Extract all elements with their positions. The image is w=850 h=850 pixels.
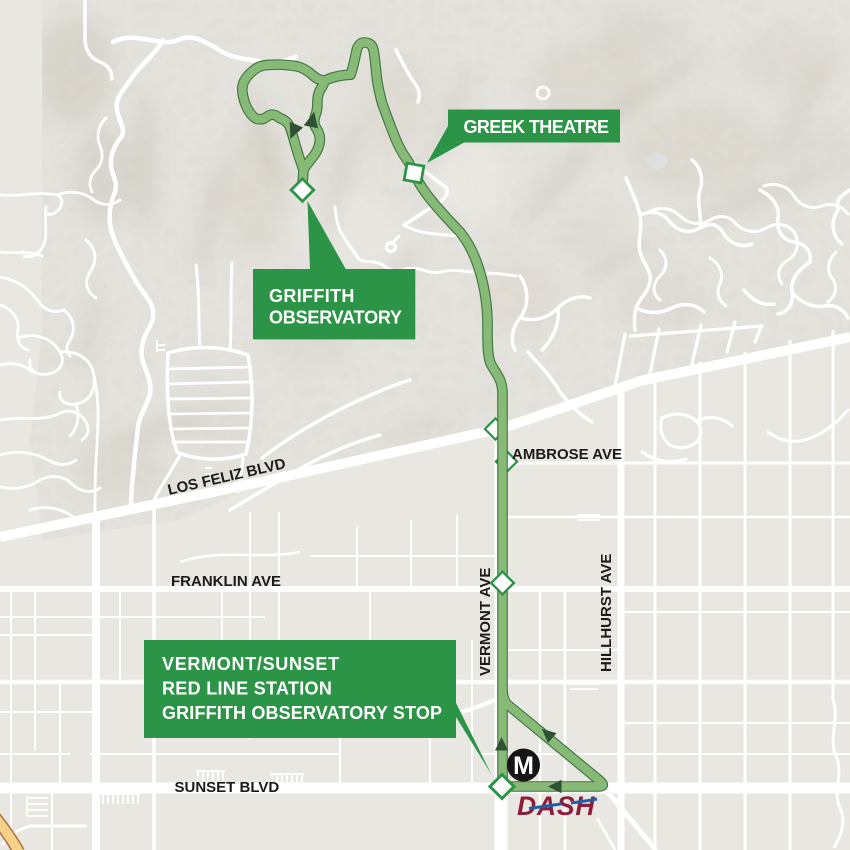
svg-text:AMBROSE AVE: AMBROSE AVE <box>512 446 622 463</box>
svg-text:RED LINE STATION: RED LINE STATION <box>162 679 332 699</box>
svg-text:VERMONT AVE: VERMONT AVE <box>477 568 494 676</box>
svg-text:GRIFFITH: GRIFFITH <box>269 286 355 306</box>
svg-text:M: M <box>513 752 534 780</box>
svg-text:FRANKLIN AVE: FRANKLIN AVE <box>171 573 281 590</box>
svg-text:GRIFFITH OBSERVATORY STOP: GRIFFITH OBSERVATORY STOP <box>162 703 442 723</box>
svg-text:HILLHURST AVE: HILLHURST AVE <box>598 554 615 672</box>
svg-text:GREEK THEATRE: GREEK THEATRE <box>464 117 609 137</box>
svg-text:VERMONT/SUNSET: VERMONT/SUNSET <box>162 654 340 674</box>
svg-text:OBSERVATORY: OBSERVATORY <box>269 308 402 328</box>
svg-text:SUNSET BLVD: SUNSET BLVD <box>175 779 280 796</box>
